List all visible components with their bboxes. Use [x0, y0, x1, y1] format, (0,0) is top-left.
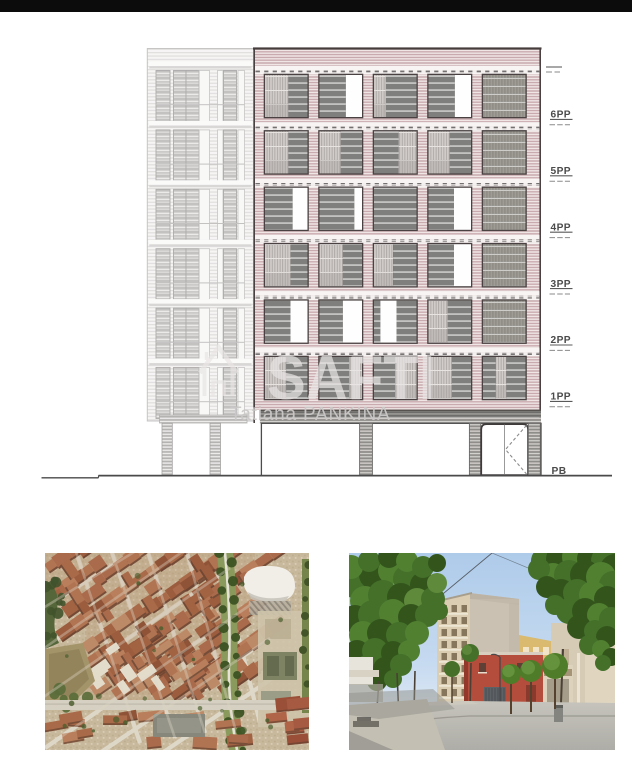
svg-text:SAFTI: SAFTI [267, 344, 435, 413]
svg-text:Tatiana PANKINA: Tatiana PANKINA [230, 404, 391, 425]
